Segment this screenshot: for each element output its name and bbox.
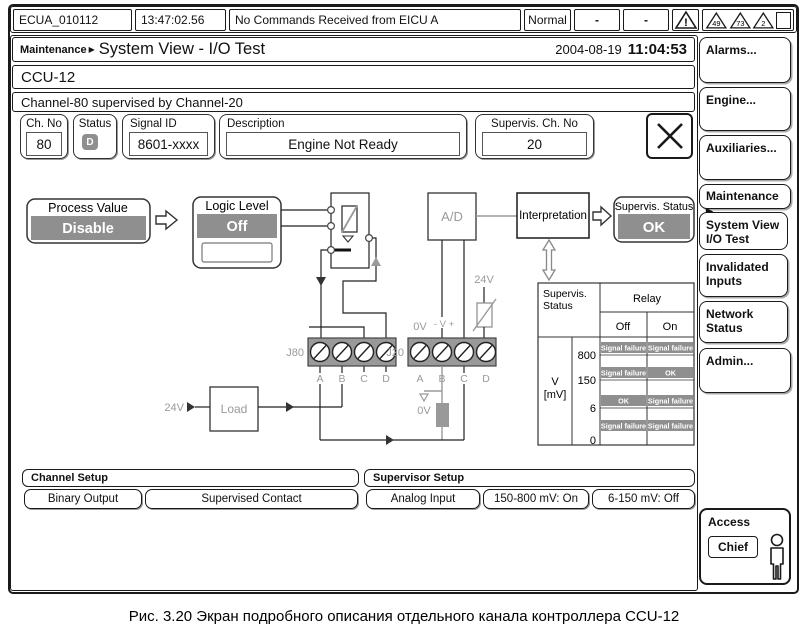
ad-converter-box: A/D bbox=[428, 193, 476, 240]
channel-note: Channel-80 supervised by Channel-20 bbox=[21, 95, 243, 110]
svg-text:800: 800 bbox=[578, 350, 596, 362]
sidebar-item-system-view[interactable]: System View I/O Test bbox=[699, 212, 788, 250]
alarm-count-triangle-1: 49 bbox=[705, 10, 728, 31]
svg-text:24V: 24V bbox=[164, 402, 184, 414]
sidebar-item-maintenance[interactable]: Maintenance ▶ bbox=[699, 184, 791, 209]
svg-text:Load: Load bbox=[221, 402, 248, 416]
channel-setup-header: Channel Setup bbox=[22, 469, 359, 487]
spare-cell-1: - bbox=[574, 9, 620, 31]
admin-label: Admin... bbox=[706, 354, 753, 368]
io-channel-diagram: Process Value Disable Logic Level Off bbox=[12, 163, 700, 465]
ground-icon bbox=[420, 394, 428, 401]
supervised-contact-label: Supervised Contact bbox=[201, 493, 301, 505]
svg-text:J20: J20 bbox=[386, 347, 404, 359]
svg-text:On: On bbox=[663, 321, 678, 333]
channel-note-bar: Channel-80 supervised by Channel-20 bbox=[12, 92, 695, 112]
flow-arrow-icon bbox=[156, 211, 177, 229]
close-button[interactable] bbox=[646, 113, 693, 159]
svg-text:J80: J80 bbox=[286, 347, 304, 359]
svg-text:Signal failure: Signal failure bbox=[648, 344, 693, 353]
sidebar-item-network-status[interactable]: Network Status bbox=[699, 301, 788, 343]
up-arrow-icon bbox=[371, 257, 381, 266]
spare-cell-2: - bbox=[623, 9, 669, 31]
right-arrow-icon bbox=[386, 435, 394, 445]
spare-value-1: - bbox=[595, 13, 599, 27]
svg-text:Supervis. Status: Supervis. Status bbox=[615, 201, 694, 213]
network-label-1: Network bbox=[706, 307, 781, 321]
empty-indicator-box bbox=[776, 12, 791, 29]
svg-text:0: 0 bbox=[590, 435, 596, 447]
interpretation-box: Interpretation bbox=[517, 193, 589, 238]
svg-text:OK: OK bbox=[643, 219, 666, 236]
access-panel: Access Chief bbox=[699, 508, 791, 585]
alarm-count-triangle-3: 2 bbox=[752, 10, 775, 31]
svg-text:!: ! bbox=[684, 17, 688, 29]
svg-text:73: 73 bbox=[736, 19, 744, 28]
relay-symbol bbox=[316, 206, 381, 286]
clock-value: 11:04:53 bbox=[628, 41, 687, 58]
sidebar-item-engine[interactable]: Engine... bbox=[699, 87, 791, 131]
flow-arrow-icon bbox=[593, 207, 611, 225]
minus-v-plus-label: - V + bbox=[434, 319, 455, 330]
svg-text:49: 49 bbox=[712, 19, 720, 28]
svg-text:C: C bbox=[360, 373, 368, 385]
system-view-label-1: System View bbox=[706, 218, 781, 232]
terminal-block-j80: J80 A B C D bbox=[286, 338, 396, 385]
range-on-label: 150-800 mV: On bbox=[494, 493, 578, 505]
maintenance-label: Maintenance bbox=[706, 189, 779, 203]
date-value: 2004-08-19 bbox=[555, 42, 622, 57]
ch-no-value: 80 bbox=[26, 132, 62, 156]
warning-triangle-icon: ! bbox=[674, 10, 698, 30]
supervised-contact-button[interactable]: Supervised Contact bbox=[145, 489, 358, 509]
svg-text:[mV]: [mV] bbox=[544, 389, 567, 401]
status-badge: D bbox=[82, 134, 98, 150]
svg-text:Signal failure: Signal failure bbox=[601, 369, 646, 378]
svg-text:Process Value: Process Value bbox=[48, 201, 128, 215]
svg-text:OK: OK bbox=[618, 397, 630, 406]
binary-output-label: Binary Output bbox=[48, 493, 118, 505]
svg-text:Signal failure: Signal failure bbox=[601, 344, 646, 353]
analog-input-label: Analog Input bbox=[391, 493, 456, 505]
supervisor-setup-header: Supervisor Setup bbox=[364, 469, 695, 487]
engine-label: Engine... bbox=[706, 93, 756, 107]
range-off-button[interactable]: 6-150 mV: Off bbox=[592, 489, 695, 509]
right-arrow-icon bbox=[286, 402, 294, 412]
access-level-button[interactable]: Chief bbox=[708, 536, 758, 558]
right-arrow-icon bbox=[187, 402, 195, 412]
svg-text:B: B bbox=[338, 373, 345, 385]
supervis-ch-label: Supervis. Ch. No bbox=[476, 118, 593, 130]
signal-id-label: Signal ID bbox=[123, 118, 214, 130]
svg-text:Signal failure: Signal failure bbox=[648, 397, 693, 406]
invalidated-label-2: Inputs bbox=[706, 274, 781, 288]
supervis-ch-value: 20 bbox=[482, 132, 587, 156]
supervis-status-box: Supervis. Status OK bbox=[614, 197, 694, 242]
zero-volt-label: 0V bbox=[413, 321, 427, 333]
svg-text:Signal failure: Signal failure bbox=[601, 422, 646, 431]
mode-value: Normal bbox=[528, 13, 567, 27]
access-label: Access bbox=[708, 515, 782, 529]
supervision-table: Supervis. Status Relay Off On V [mV] 800… bbox=[538, 283, 694, 447]
signal-id-value: 8601-xxxx bbox=[129, 132, 208, 156]
network-label-2: Status bbox=[706, 321, 781, 335]
signal-id-group: Signal ID 8601-xxxx bbox=[122, 114, 215, 159]
page-title-bar: Maintenance ▶ System View - I/O Test 200… bbox=[12, 37, 695, 62]
down-arrow-icon bbox=[316, 277, 326, 286]
svg-text:Relay: Relay bbox=[633, 293, 662, 305]
controller-name: CCU-12 bbox=[21, 69, 75, 86]
sidebar-item-invalidated-inputs[interactable]: Invalidated Inputs bbox=[699, 254, 788, 297]
svg-text:Logic Level: Logic Level bbox=[205, 199, 268, 213]
alarm-badges-cell[interactable]: 49 73 2 bbox=[702, 9, 794, 31]
svg-text:OK: OK bbox=[665, 369, 677, 378]
ch-no-group: Ch. No 80 bbox=[20, 114, 68, 159]
terminal-block-j20: J20 A B C D bbox=[386, 338, 496, 385]
status-message: No Commands Received from EICU A bbox=[235, 13, 438, 27]
svg-text:V: V bbox=[551, 376, 559, 388]
system-view-label-2: I/O Test bbox=[706, 232, 781, 246]
svg-text:A/D: A/D bbox=[441, 209, 463, 224]
sidebar-item-auxiliaries[interactable]: Auxiliaries... bbox=[699, 135, 791, 180]
svg-text:Supervis.: Supervis. bbox=[543, 288, 587, 300]
svg-text:Status: Status bbox=[543, 300, 573, 312]
ams-screen: ECUA_010112 13:47:02.56 No Commands Rece… bbox=[0, 0, 808, 640]
breadcrumb-arrow-icon: ▶ bbox=[89, 45, 95, 54]
svg-text:2: 2 bbox=[762, 19, 766, 28]
svg-text:Disable: Disable bbox=[62, 221, 114, 237]
double-arrow-icon bbox=[543, 240, 555, 280]
supervis-ch-group: Supervis. Ch. No 20 bbox=[475, 114, 594, 159]
svg-text:D: D bbox=[482, 373, 490, 385]
range-on-button[interactable]: 150-800 mV: On bbox=[483, 489, 589, 509]
svg-text:A: A bbox=[416, 373, 423, 385]
svg-text:A: A bbox=[316, 373, 323, 385]
svg-text:Off: Off bbox=[616, 321, 631, 333]
sidebar-item-alarms[interactable]: Alarms... bbox=[699, 37, 791, 83]
system-time-cell: 13:47:02.56 bbox=[135, 9, 226, 31]
description-label: Description bbox=[220, 118, 466, 130]
ch-no-label: Ch. No bbox=[21, 118, 67, 130]
status-label: Status bbox=[74, 118, 116, 130]
alarm-warning-cell[interactable]: ! bbox=[672, 9, 699, 31]
breadcrumb: Maintenance bbox=[20, 44, 87, 56]
sidebar-item-admin[interactable]: Admin... bbox=[699, 348, 791, 393]
process-value-box: Process Value Disable bbox=[27, 199, 150, 243]
analog-input-button[interactable]: Analog Input bbox=[366, 489, 480, 509]
status-message-cell: No Commands Received from EICU A bbox=[229, 9, 521, 31]
svg-text:Off: Off bbox=[227, 219, 248, 235]
close-icon bbox=[653, 119, 687, 153]
figure-caption: Рис. 3.20 Экран подробного описания отде… bbox=[0, 608, 808, 625]
svg-text:D: D bbox=[382, 373, 390, 385]
logic-level-box: Logic Level Off bbox=[193, 197, 281, 268]
page-title: System View - I/O Test bbox=[99, 40, 265, 59]
unit-id: ECUA_010112 bbox=[19, 13, 98, 27]
spare-value-2: - bbox=[644, 13, 648, 27]
alarm-count-triangle-2: 73 bbox=[729, 10, 752, 31]
relay-wiring bbox=[281, 193, 386, 440]
auxiliaries-label: Auxiliaries... bbox=[706, 141, 777, 155]
svg-text:C: C bbox=[460, 373, 468, 385]
varistor-branch: 24V bbox=[473, 274, 496, 338]
svg-text:6: 6 bbox=[590, 403, 596, 415]
range-off-label: 6-150 mV: Off bbox=[608, 493, 679, 505]
unit-id-cell: ECUA_010112 bbox=[13, 9, 132, 31]
user-icon bbox=[765, 532, 789, 582]
channel-setup-title: Channel Setup bbox=[31, 472, 108, 484]
svg-text:150: 150 bbox=[578, 375, 596, 387]
svg-text:Interpretation: Interpretation bbox=[519, 210, 587, 222]
svg-text:0V: 0V bbox=[417, 405, 431, 417]
description-value: Engine Not Ready bbox=[226, 132, 460, 156]
supervisor-setup-title: Supervisor Setup bbox=[373, 472, 464, 484]
mode-cell: Normal bbox=[524, 9, 571, 31]
invalidated-label-1: Invalidated bbox=[706, 260, 781, 274]
alarms-label: Alarms... bbox=[706, 43, 757, 57]
system-time: 13:47:02.56 bbox=[141, 13, 204, 27]
svg-text:Signal failure: Signal failure bbox=[648, 422, 693, 431]
description-group: Description Engine Not Ready bbox=[219, 114, 467, 159]
status-group: Status D bbox=[73, 114, 117, 159]
controller-bar: CCU-12 bbox=[12, 65, 695, 89]
svg-text:24V: 24V bbox=[474, 274, 494, 286]
binary-output-button[interactable]: Binary Output bbox=[24, 489, 142, 509]
